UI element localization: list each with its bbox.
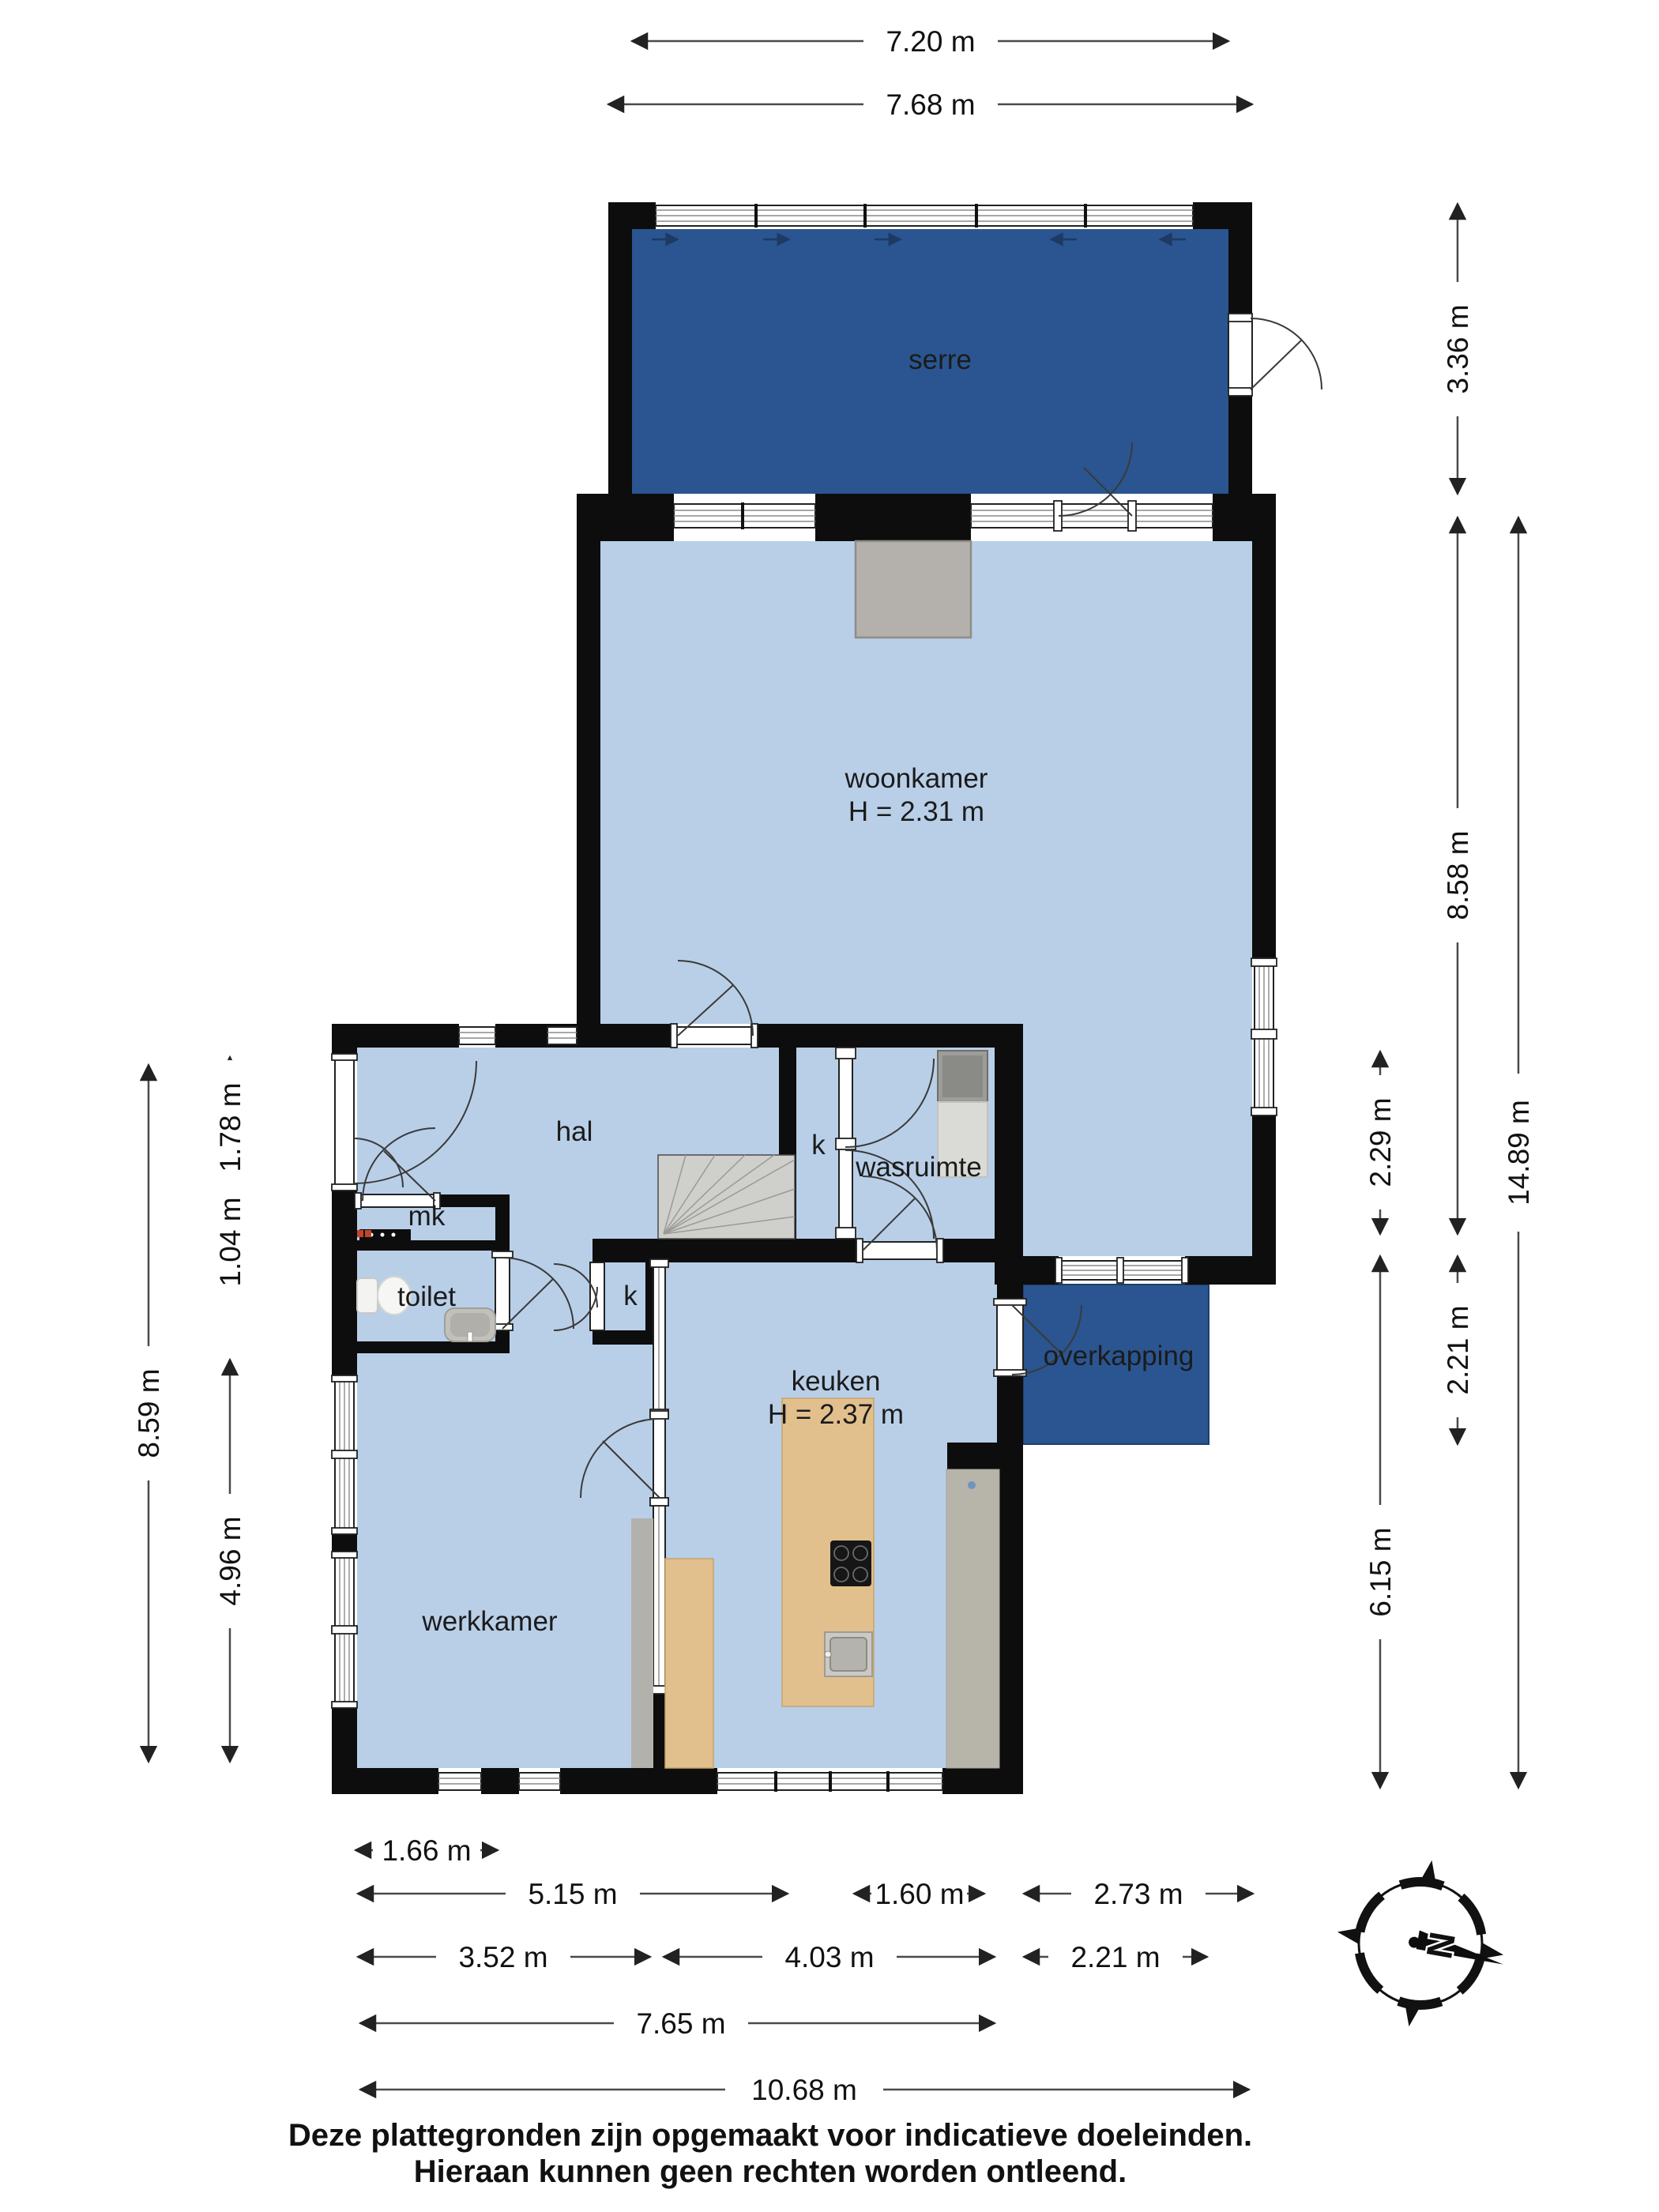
dim-left-496: 4.96 m: [214, 1516, 246, 1605]
wall-segment: [942, 1768, 1023, 1794]
dim-right-221: 2.21 m: [1442, 1305, 1474, 1394]
wall-segment: [332, 1024, 357, 1057]
dim-left-104: 1.04 m: [214, 1197, 246, 1286]
wall-segment: [995, 1024, 1023, 1256]
room-height-keuken: H = 2.37 m: [768, 1399, 904, 1430]
dim-top-720: 7.20 m: [886, 25, 975, 58]
wall-segment: [999, 1469, 1023, 1794]
wall-segment: [600, 1024, 674, 1048]
woonkamer-bottom-window: [1055, 1258, 1188, 1283]
dim-left-859: 8.59 m: [133, 1368, 165, 1458]
dim-bottom-352: 3.52 m: [458, 1941, 547, 1973]
dim-bottom-160: 1.60 m: [875, 1878, 964, 1910]
wall-segment: [577, 494, 600, 1048]
kitchen-island: [782, 1398, 874, 1706]
room-label-keuken: keuken: [792, 1366, 881, 1397]
desk-counter: [631, 1518, 653, 1768]
wall-segment: [560, 1768, 717, 1794]
dim-right-336: 3.36 m: [1442, 304, 1474, 393]
dim-right-858: 8.58 m: [1442, 830, 1474, 920]
serre-door: [1228, 314, 1322, 396]
room-label-wasruimte: wasruimte: [855, 1152, 981, 1183]
wall-segment: [947, 1443, 999, 1469]
room-label-mk: mk: [408, 1201, 446, 1232]
kitchen-cabinet: [665, 1559, 713, 1768]
wall-segment: [608, 202, 656, 229]
room-label-woonkamer: woonkamer: [845, 763, 988, 794]
room-label-toilet: toilet: [397, 1281, 456, 1312]
dim-right-1489: 14.89 m: [1503, 1100, 1535, 1206]
wall-segment: [1185, 1256, 1276, 1285]
dim-bottom-166: 1.66 m: [382, 1834, 471, 1867]
dim-bottom-273: 2.73 m: [1093, 1878, 1183, 1910]
wall-segment: [608, 202, 632, 517]
dim-right-229: 2.29 m: [1364, 1097, 1397, 1187]
washbasin-icon: [445, 1308, 495, 1341]
wall-segment: [592, 1330, 660, 1345]
wall-segment: [592, 1239, 860, 1262]
room-label-closet-upper: k: [811, 1130, 826, 1161]
room-height-woonkamer: H = 2.31 m: [848, 796, 984, 827]
room-label-werkkamer: werkkamer: [421, 1606, 557, 1637]
chimney-block: [856, 541, 971, 638]
wall-segment: [1193, 202, 1252, 229]
woonkamer-top-window-left: [674, 502, 815, 529]
wall-segment: [653, 1691, 665, 1768]
room-label-serre: serre: [908, 344, 972, 375]
room-label-overkapping: overkapping: [1044, 1341, 1194, 1371]
dim-bottom-515: 5.15 m: [528, 1878, 617, 1910]
disclaimer-line2: Hieraan kunnen geen rechten worden ontle…: [414, 2154, 1127, 2189]
dim-left-178: 1.78 m: [214, 1082, 246, 1172]
disclaimer: Deze plattegronden zijn opgemaakt voor i…: [288, 2118, 1252, 2189]
wall-segment: [1252, 1112, 1276, 1256]
woonkamer-right-window: [1251, 958, 1277, 1115]
disclaimer-line1: Deze plattegronden zijn opgemaakt voor i…: [288, 2118, 1252, 2153]
stairs: [658, 1155, 795, 1239]
dim-top-768: 7.68 m: [886, 88, 975, 121]
room-label-closet-lower: k: [623, 1281, 638, 1311]
meter-panel-icon: [357, 1229, 411, 1240]
floor-plan: serre woonkamer H = 2.31 m hal k wasruim…: [0, 0, 1659, 2212]
wall-segment: [332, 1768, 438, 1794]
wall-segment: [1252, 494, 1276, 963]
dim-bottom-765: 7.65 m: [636, 2007, 725, 2040]
wall-segment: [997, 1373, 1023, 1469]
dim-bottom-221: 2.21 m: [1070, 1941, 1160, 1973]
wall-segment: [357, 1240, 510, 1251]
dim-bottom-403: 4.03 m: [784, 1941, 874, 1973]
wall-segment: [332, 1341, 510, 1353]
kitchen-counter: [946, 1469, 999, 1768]
sink-icon: [825, 1632, 872, 1676]
floor-plan-page: serre woonkamer H = 2.31 m hal k wasruim…: [0, 0, 1659, 2212]
dim-right-615: 6.15 m: [1364, 1527, 1397, 1616]
serre-glass-wall: [656, 204, 1193, 228]
woonkamer-top-window-right: [971, 501, 1213, 531]
wall-segment: [495, 1194, 510, 1240]
wall-segment: [815, 494, 971, 541]
compass-rose: N: [1323, 1846, 1519, 2041]
wall-segment: [481, 1768, 519, 1794]
room-label-hal: hal: [556, 1116, 593, 1147]
dim-bottom-1068: 10.68 m: [751, 2074, 857, 2106]
